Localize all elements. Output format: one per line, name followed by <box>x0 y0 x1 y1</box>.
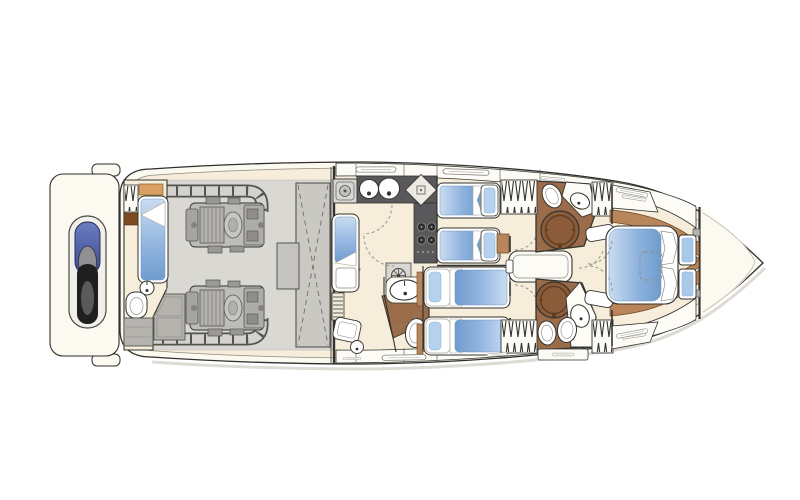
washing-machine-icon <box>333 179 357 203</box>
crew-bed <box>138 196 168 283</box>
crew-shelf <box>139 184 163 195</box>
lobby-sink round-sink-icon <box>351 341 364 354</box>
deck-plan-drawing <box>0 0 800 500</box>
lobby-stool <box>332 317 362 344</box>
hanging-locker-icon <box>501 320 537 353</box>
engine-room-service-box <box>277 243 299 289</box>
double-bed <box>606 226 678 304</box>
nightstand-wood <box>417 272 423 306</box>
nightstand-wood <box>417 324 423 354</box>
galley-sink round-sink-icon <box>360 180 379 199</box>
single-bed <box>437 228 500 263</box>
hanging-locker-icon <box>124 185 138 212</box>
nightstand-wood <box>497 234 509 253</box>
single-bed <box>424 267 510 308</box>
bathroom-drawer <box>538 349 588 360</box>
corridor-chest <box>506 251 572 282</box>
crew-cabinet-wood <box>124 213 138 225</box>
lobby-settee <box>332 214 359 292</box>
stairs-icon <box>332 293 344 320</box>
engine-starboard <box>186 280 264 336</box>
galley-sink round-sink-icon <box>379 178 400 199</box>
lower-lobby <box>332 214 364 354</box>
single-bed <box>424 317 510 355</box>
crew-toilet toilet-icon <box>126 292 147 318</box>
single-bed <box>437 183 500 218</box>
yacht-deck-plan <box>0 0 800 500</box>
shower-icon <box>541 211 579 249</box>
jet-ski-icon <box>69 216 106 328</box>
bedside-shelf <box>679 269 696 299</box>
bedside-shelf <box>679 235 696 265</box>
fuel-tank-icon <box>296 183 330 347</box>
galley-counter-side <box>414 203 437 263</box>
engine-port <box>186 197 264 253</box>
hanging-locker-icon <box>501 180 537 214</box>
crew-cabinet <box>124 318 153 346</box>
hanging-locker-icon <box>592 320 613 353</box>
